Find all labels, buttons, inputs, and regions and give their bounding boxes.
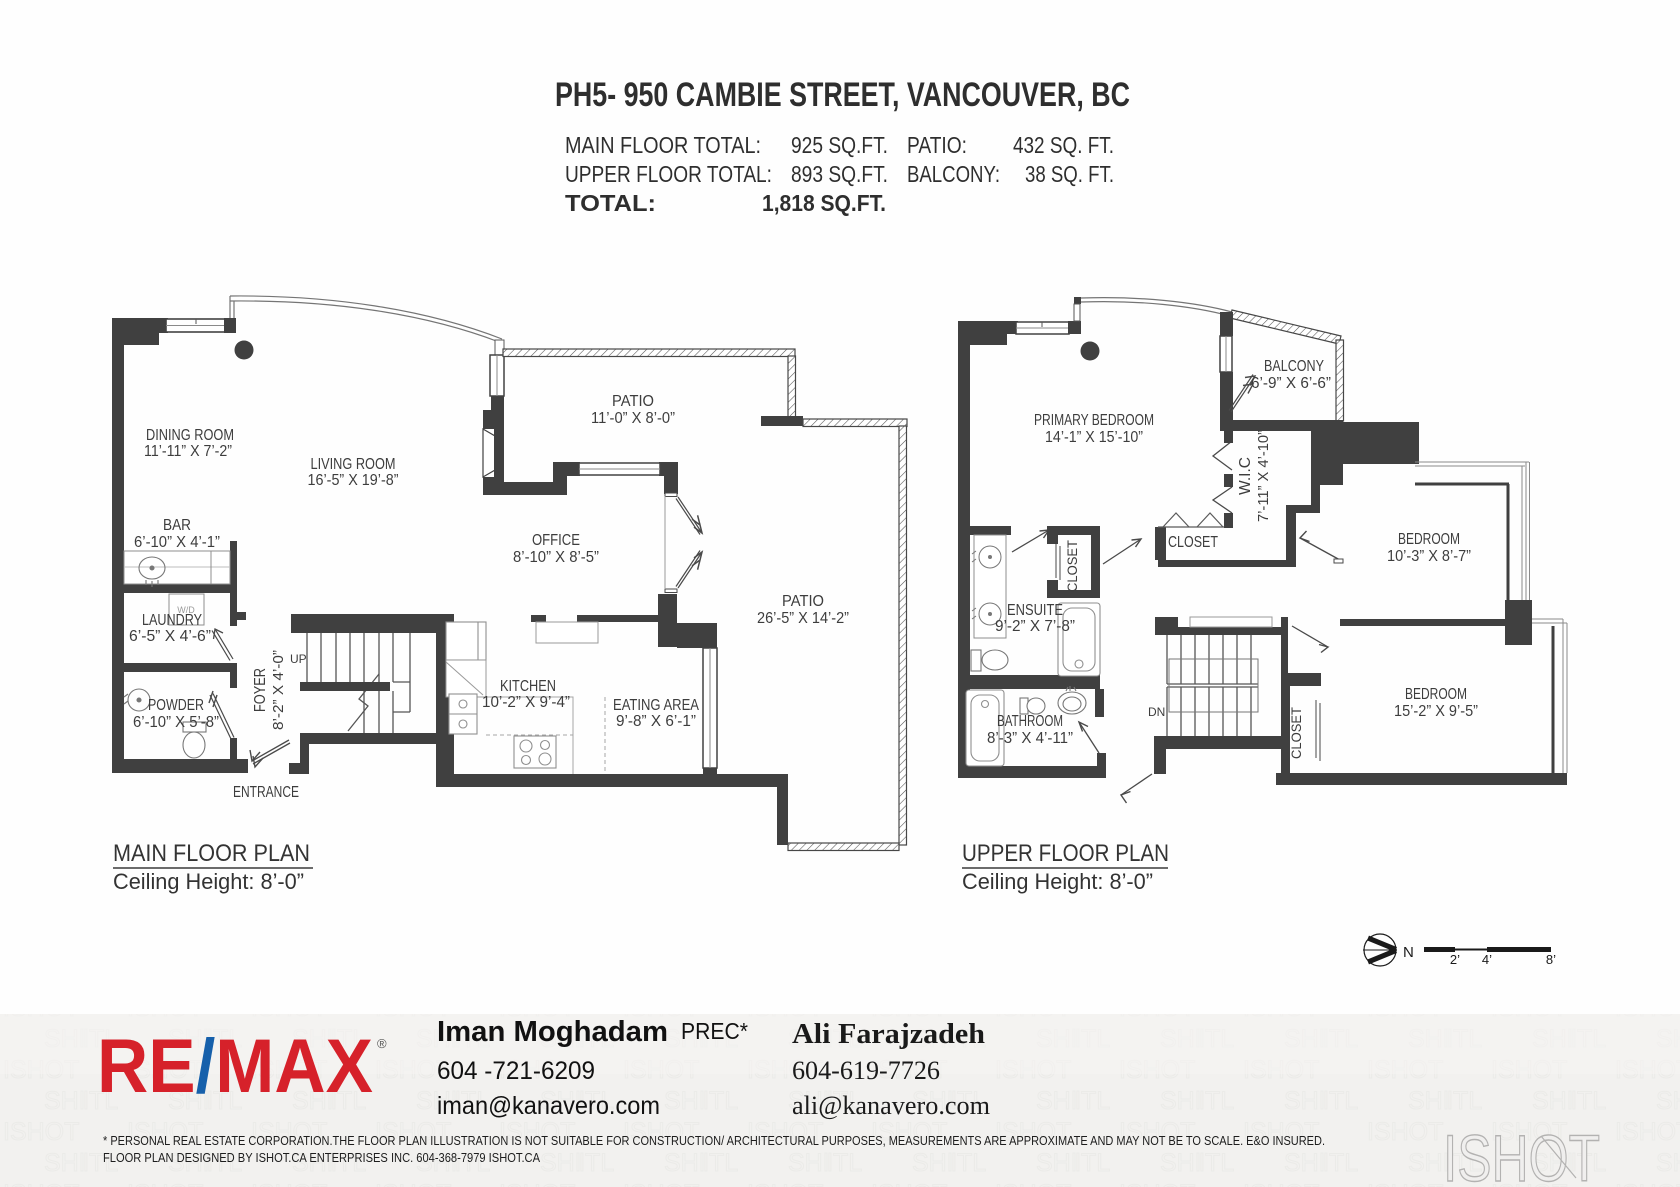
svg-text:PATIO: PATIO (782, 593, 824, 610)
svg-text:2’: 2’ (1450, 952, 1460, 967)
svg-text:EATING AREA: EATING AREA (613, 697, 700, 714)
svg-text:8’-3” X 4’-11”: 8’-3” X 4’-11” (987, 730, 1073, 747)
svg-text:BALCONY:: BALCONY: (907, 161, 1000, 187)
svg-text:POWDER: POWDER (148, 697, 204, 714)
svg-text:CLOSET: CLOSET (1289, 707, 1304, 759)
svg-text:iman@kanavero.com: iman@kanavero.com (437, 1092, 660, 1120)
svg-text:14’-1” X 15’-10”: 14’-1” X 15’-10” (1045, 429, 1143, 446)
svg-text:604 -721-6209: 604 -721-6209 (437, 1057, 595, 1085)
svg-text:PRIMARY BEDROOM: PRIMARY BEDROOM (1034, 412, 1154, 429)
svg-text:CLOSET: CLOSET (1065, 540, 1080, 592)
svg-text:38 SQ. FT.: 38 SQ. FT. (1025, 161, 1114, 187)
svg-text:9’-2” X 7’-8”: 9’-2” X 7’-8” (995, 618, 1075, 635)
svg-text:1,818 SQ.FT.: 1,818 SQ.FT. (762, 190, 886, 216)
svg-text:Ali Farajzadeh: Ali Farajzadeh (792, 1019, 985, 1050)
svg-text:7’-11” X 4’-10”: 7’-11” X 4’-10” (1255, 430, 1272, 522)
svg-text:MAIN FLOOR PLAN: MAIN FLOOR PLAN (113, 840, 310, 867)
svg-text:8’-2” X 4’-0”: 8’-2” X 4’-0” (270, 650, 287, 730)
svg-text:* PERSONAL REAL ESTATE CORPORA: * PERSONAL REAL ESTATE CORPORATION.THE F… (103, 1134, 1325, 1148)
svg-text:PATIO:: PATIO: (907, 132, 967, 158)
svg-text:DN: DN (1148, 705, 1165, 719)
svg-text:W.I.C: W.I.C (1237, 457, 1254, 495)
svg-text:6’-10” X 5’-8”: 6’-10” X 5’-8” (133, 714, 219, 731)
svg-text:PATIO: PATIO (612, 393, 654, 410)
svg-text:RE/MAX: RE/MAX (97, 1024, 373, 1109)
svg-text:N: N (1403, 944, 1414, 961)
svg-text:604-619-7726: 604-619-7726 (792, 1056, 940, 1085)
svg-text:TOTAL:: TOTAL: (565, 190, 656, 216)
svg-text:PH5- 950 CAMBIE STREET, VANCOU: PH5- 950 CAMBIE STREET, VANCOUVER, BC (555, 76, 1130, 114)
svg-text:OFFICE: OFFICE (532, 532, 580, 549)
svg-text:8’-10” X 8’-5”: 8’-10” X 8’-5” (513, 549, 599, 566)
svg-text:KITCHEN: KITCHEN (500, 678, 556, 695)
svg-text:Ceiling Height: 8’-0”: Ceiling Height: 8’-0” (962, 869, 1153, 894)
svg-text:893 SQ.FT.: 893 SQ.FT. (791, 161, 888, 187)
svg-text:11’-11” X 7’-2”: 11’-11” X 7’-2” (144, 443, 232, 460)
svg-text:6’-10” X 4’-1”: 6’-10” X 4’-1” (134, 534, 220, 551)
svg-text:BAR: BAR (163, 517, 191, 534)
svg-text:Ceiling Height: 8’-0”: Ceiling Height: 8’-0” (113, 869, 304, 894)
svg-text:UPPER FLOOR PLAN: UPPER FLOOR PLAN (962, 840, 1169, 867)
svg-text:BEDROOM: BEDROOM (1398, 531, 1460, 548)
svg-text:ISHOT: ISHOT (1443, 1121, 1600, 1187)
svg-text:16’-5” X 19’-8”: 16’-5” X 19’-8” (308, 472, 399, 489)
svg-text:26’-5” X 14’-2”: 26’-5” X 14’-2” (757, 610, 849, 627)
svg-text:ali@kanavero.com: ali@kanavero.com (792, 1091, 990, 1120)
svg-text:10’-2” X 9’-4”: 10’-2” X 9’-4” (482, 694, 570, 711)
svg-text:6’-9” X 6’-6”: 6’-9” X 6’-6” (1251, 375, 1331, 392)
svg-text:15’-2” X 9’-5”: 15’-2” X 9’-5” (1394, 703, 1478, 720)
svg-text:MAIN FLOOR TOTAL:: MAIN FLOOR TOTAL: (565, 132, 761, 158)
svg-text:ENTRANCE: ENTRANCE (233, 784, 299, 801)
svg-text:BALCONY: BALCONY (1264, 358, 1324, 375)
svg-text:®: ® (377, 1036, 387, 1051)
svg-text:FLOOR PLAN DESIGNED BY ISHOT.C: FLOOR PLAN DESIGNED BY ISHOT.CA ENTERPRI… (103, 1151, 541, 1165)
svg-text:4’: 4’ (1482, 952, 1492, 967)
svg-text:925 SQ.FT.: 925 SQ.FT. (791, 132, 888, 158)
svg-text:9’-8” X 6’-1”: 9’-8” X 6’-1” (616, 713, 696, 730)
svg-text:432 SQ. FT.: 432 SQ. FT. (1013, 132, 1114, 158)
svg-text:UPPER FLOOR TOTAL:: UPPER FLOOR TOTAL: (565, 161, 772, 187)
svg-text:BATHROOM: BATHROOM (997, 713, 1063, 730)
svg-text:DINING ROOM: DINING ROOM (146, 427, 234, 444)
svg-text:UP: UP (290, 652, 307, 666)
svg-text:LIVING ROOM: LIVING ROOM (311, 456, 396, 473)
svg-text:11’-0” X 8’-0”: 11’-0” X 8’-0” (591, 410, 675, 427)
svg-text:Iman Moghadam: Iman Moghadam (437, 1016, 668, 1048)
svg-text:10’-3” X 8’-7”: 10’-3” X 8’-7” (1387, 548, 1471, 565)
svg-text:8’: 8’ (1546, 952, 1556, 967)
svg-text:FOYER: FOYER (252, 668, 269, 712)
svg-text:BEDROOM: BEDROOM (1405, 686, 1467, 703)
svg-text:LAUNDRY: LAUNDRY (142, 612, 202, 629)
svg-text:CLOSET: CLOSET (1168, 534, 1218, 551)
svg-text:6’-5” X 4’-6”: 6’-5” X 4’-6” (129, 628, 211, 645)
svg-text:PREC*: PREC* (681, 1018, 748, 1044)
svg-text:ENSUITE: ENSUITE (1007, 602, 1063, 619)
